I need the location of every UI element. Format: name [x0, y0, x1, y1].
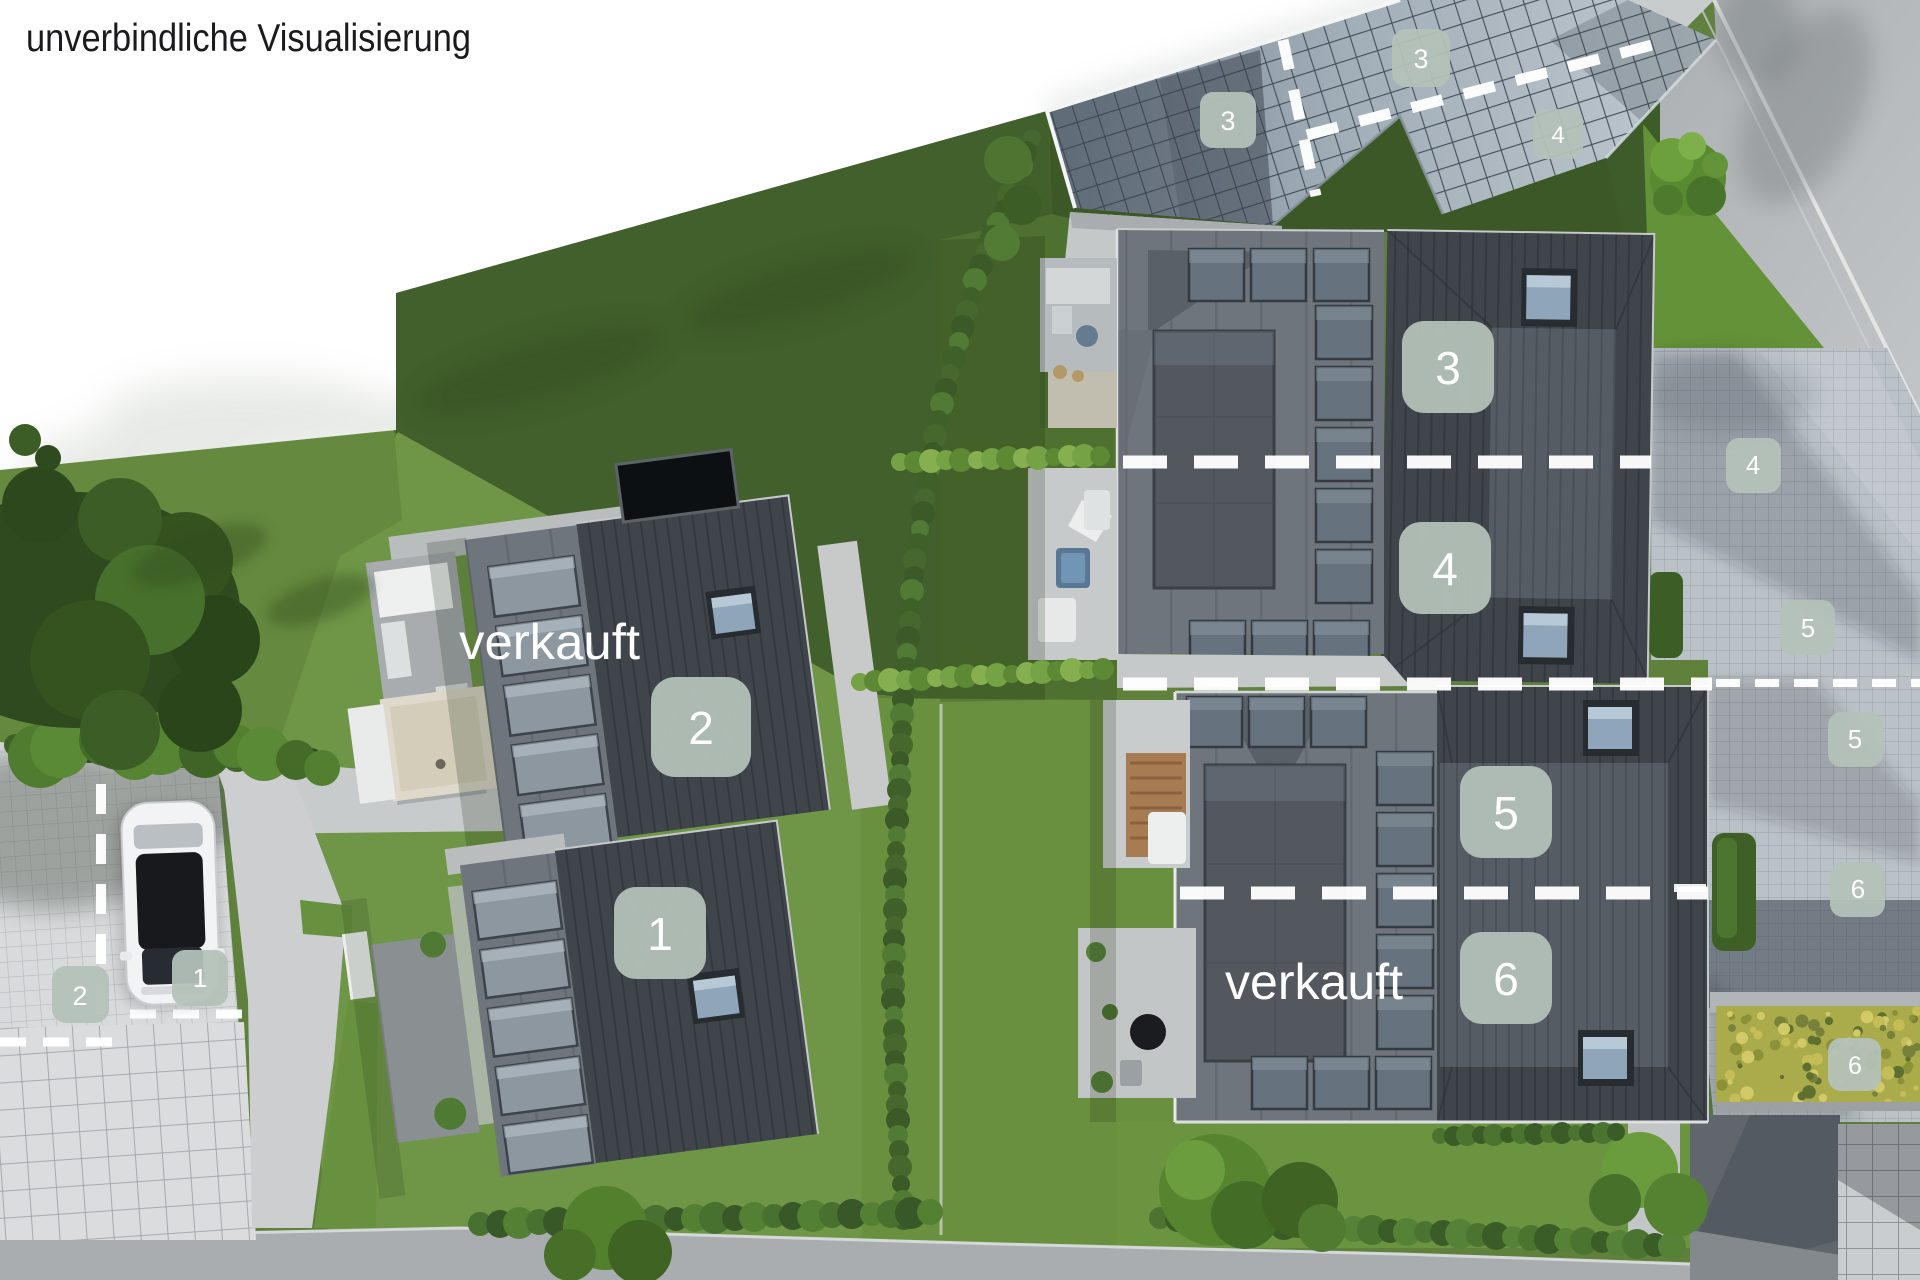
- svg-text:2: 2: [688, 702, 714, 754]
- svg-text:verkauft: verkauft: [459, 614, 640, 670]
- svg-text:4: 4: [1551, 122, 1564, 149]
- svg-text:3: 3: [1435, 342, 1461, 394]
- svg-text:4: 4: [1432, 543, 1458, 595]
- svg-text:6: 6: [1493, 953, 1519, 1005]
- svg-text:5: 5: [1493, 787, 1519, 839]
- svg-text:3: 3: [1220, 106, 1235, 136]
- svg-text:6: 6: [1851, 874, 1865, 904]
- svg-text:5: 5: [1801, 613, 1815, 643]
- svg-text:verkauft: verkauft: [1225, 954, 1403, 1010]
- svg-text:2: 2: [72, 981, 87, 1011]
- svg-text:unverbindliche Visualisierung: unverbindliche Visualisierung: [26, 17, 471, 60]
- svg-text:3: 3: [1413, 44, 1428, 74]
- svg-text:5: 5: [1848, 724, 1862, 754]
- svg-text:1: 1: [647, 908, 673, 960]
- svg-text:6: 6: [1848, 1052, 1862, 1080]
- svg-text:4: 4: [1746, 450, 1760, 480]
- svg-text:1: 1: [193, 963, 207, 993]
